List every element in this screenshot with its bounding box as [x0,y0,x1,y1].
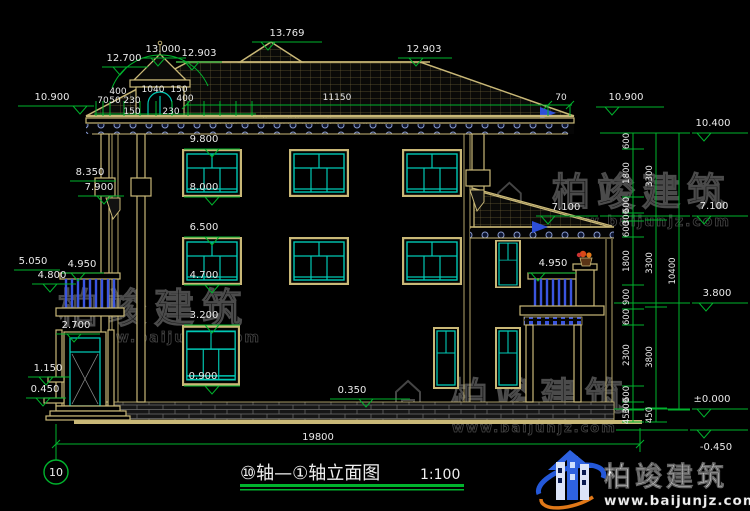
svg-text:1800: 1800 [622,162,632,184]
svg-text:600: 600 [622,133,632,149]
dim-label: 70 [97,96,109,106]
wing-window-2f [496,241,520,287]
level-label: 6.500 [190,222,219,233]
brand-logo: 柏竣建筑 www.baijunjz.com [538,450,750,509]
level-label: 9.800 [190,134,219,145]
column-capital [131,178,151,196]
svg-text:600: 600 [622,221,632,237]
wing-window-1f [496,328,520,388]
porch-column [137,134,145,402]
level-label: 0.450 [31,384,60,395]
svg-text:450: 450 [622,408,632,424]
window-3f-right [403,150,461,196]
porch-column [574,325,581,402]
dim-label: 1040 [142,85,165,95]
porch-column [526,325,533,402]
balcony-slab [56,308,124,316]
ground-and-plinth [74,402,642,424]
level-label: 12.903 [182,48,217,59]
balcony-balusters [66,279,114,308]
balcony-rail [60,273,120,279]
logo-brand-text: 柏竣建筑 [604,461,728,493]
logo-url-text: www.baijunjz.com [604,493,750,509]
level-label: 13.769 [270,28,305,39]
dim-label: 11150 [323,93,352,103]
level-label: 1.150 [34,363,63,374]
level-label: 10.900 [609,92,644,103]
svg-text:450: 450 [645,407,655,423]
level-label: 13.000 [146,44,181,55]
axis-bubble-label: 10 [49,466,63,479]
flower-urn [580,258,592,266]
level-label: 7.900 [85,182,114,193]
ground-line [74,420,642,424]
level-label: 4.950 [68,259,97,270]
level-label: 0.350 [338,385,367,396]
eave-band [86,116,574,134]
side-ledge [44,398,64,403]
level-label: 12.700 [107,53,142,64]
right-dim-chains: 600 1800 600 300 600 1800 900 600 2300 6… [600,118,748,453]
dim-label: 70 [555,93,567,103]
level-label: 7.100 [552,202,581,213]
level-label: 4.800 [38,270,67,281]
svg-text:3800: 3800 [645,346,655,368]
balcony-pier [576,270,594,306]
chain-c-labels: 10400 [668,257,678,284]
entry-steps [56,406,120,411]
level-label: 3.800 [703,288,732,299]
wing-dentil-row [470,229,614,238]
window-2f-right [403,238,461,284]
window-1f-narrow [434,328,458,388]
entry-steps [50,411,126,416]
entry-steps [46,416,130,420]
svg-text:10400: 10400 [668,257,678,284]
level-label: 0.900 [189,371,218,382]
porch-beam [520,306,604,315]
drawing-title: ⑩轴—①轴立面图 [240,463,380,484]
dim-label: 50 [109,96,121,106]
svg-text:1800: 1800 [622,250,632,272]
windows [183,150,461,388]
overall-dim-label: 19800 [302,432,334,443]
level-label: 8.350 [76,167,105,178]
svg-text:900: 900 [622,289,632,305]
window-2f-center [290,238,348,284]
column-capital [466,170,490,186]
level-label: 10.400 [696,118,731,129]
drawing-scale: 1:100 [420,467,460,483]
level-label: 10.900 [35,92,70,103]
svg-text:600: 600 [622,309,632,325]
level-label: 7.100 [700,201,729,212]
svg-text:3300: 3300 [645,252,655,274]
level-label: ±0.000 [693,394,730,405]
level-label: 12.903 [407,44,442,55]
entry-door [70,338,100,406]
level-label: 3.200 [190,310,219,321]
porch-dentil-frieze [524,317,582,325]
level-label: -0.450 [700,442,732,453]
dim-label: 230 [123,96,140,106]
dentil-row [86,124,574,134]
level-label: 4.950 [539,258,568,269]
level-label: 8.000 [190,182,219,193]
svg-text:2300: 2300 [622,344,632,366]
level-label: 4.700 [190,270,219,281]
dim-label: 150 [123,107,140,117]
window-3f-center [290,150,348,196]
level-label: 2.700 [62,320,91,331]
roof-peak-gable [240,42,302,62]
stone-plinth [88,402,614,420]
title-underline [240,484,464,487]
wing-balusters [535,279,571,306]
level-label: 5.050 [19,256,48,267]
dim-label: 400 [176,94,193,104]
cad-elevation-drawing: 柏竣建筑 www.baijunjz.com 柏竣建筑 www.baijunjz.… [0,0,750,511]
title-underline [240,489,464,491]
elevation-canvas: 柏竣建筑 www.baijunjz.com 柏竣建筑 www.baijunjz.… [0,0,750,511]
dim-label: 230 [162,107,179,117]
svg-text:3300: 3300 [645,165,655,187]
